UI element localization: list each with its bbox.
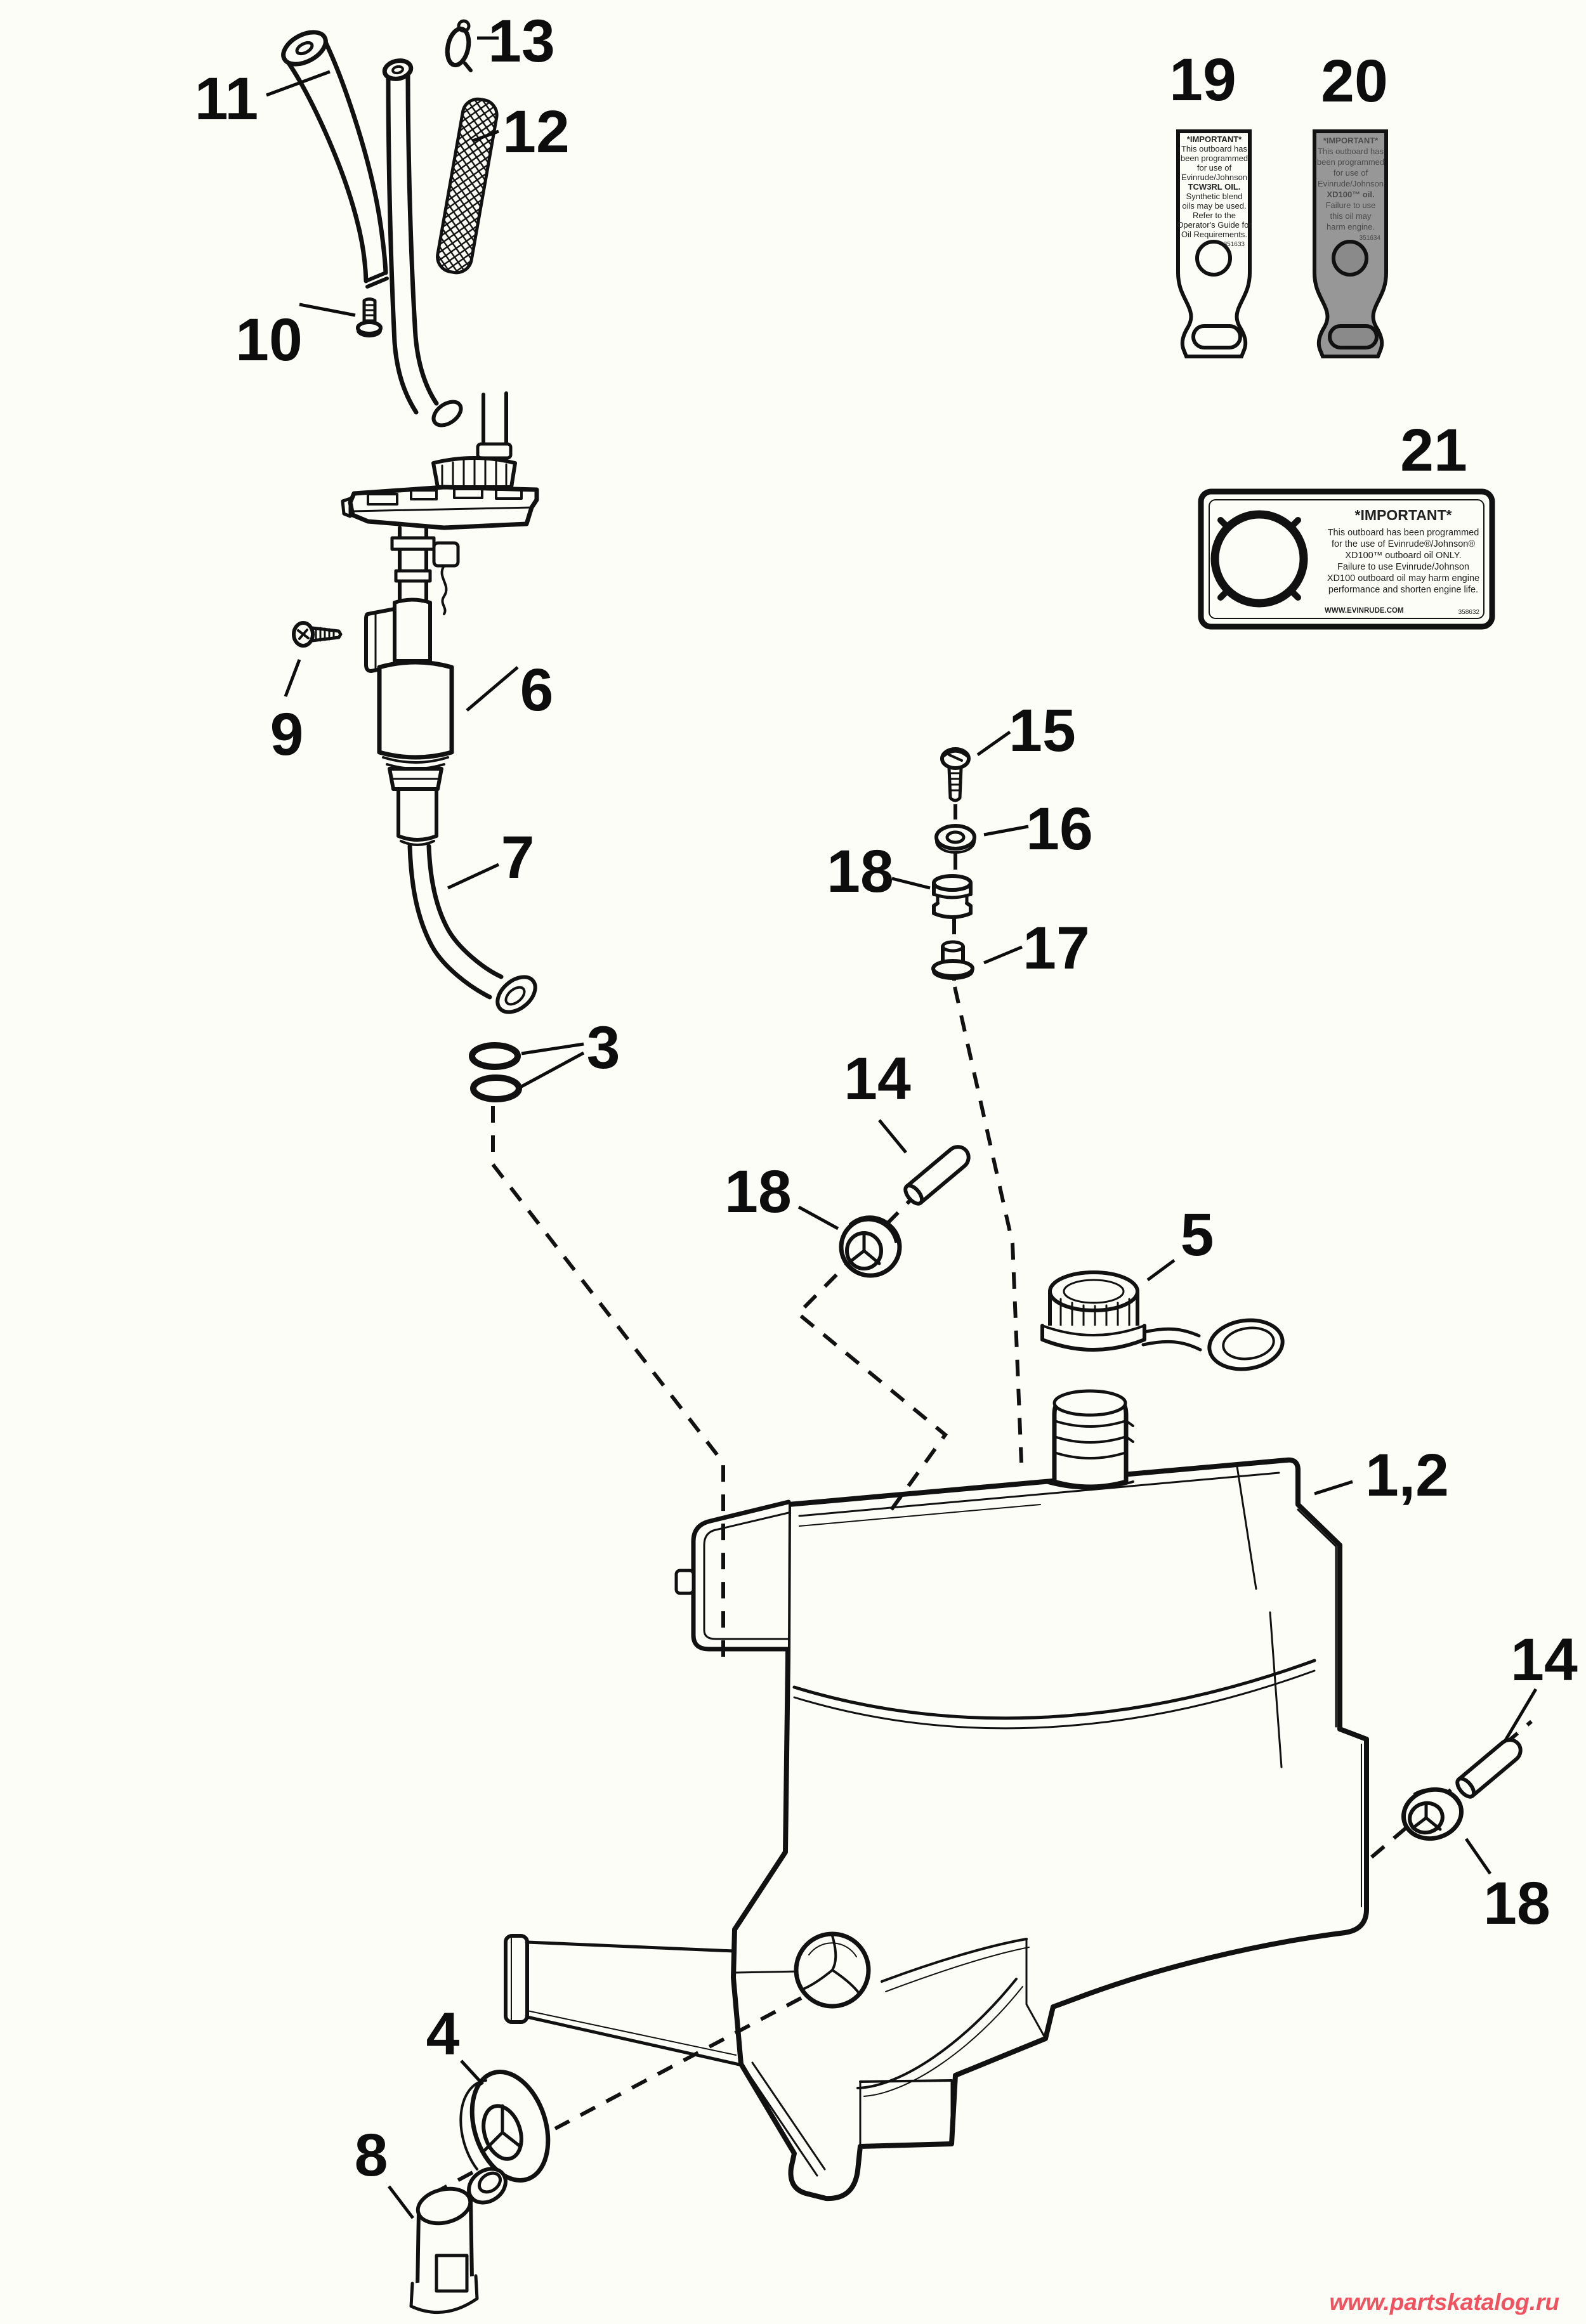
- part-grommet-18-mid: [934, 876, 971, 917]
- decal21-line: This outboard has been programmed: [1328, 528, 1479, 538]
- callout-21: 21: [1400, 417, 1467, 484]
- callout-6: 6: [520, 656, 554, 724]
- part-grommet-18-right: [1398, 1783, 1467, 1844]
- part-elbow-8: [411, 2162, 512, 2313]
- callout-14-right: 14: [1511, 1626, 1578, 1694]
- part-clamp-13: [444, 21, 471, 70]
- tag19-line: oils may be used.: [1182, 201, 1246, 211]
- tag20-line: *IMPORTANT*: [1323, 136, 1379, 145]
- tag19-line: Evinrude/Johnson: [1181, 173, 1247, 182]
- callout-18-right: 18: [1483, 1870, 1550, 1937]
- part-screw-15: [942, 749, 969, 800]
- callout-1-2: 1,2: [1365, 1442, 1449, 1509]
- callout-17: 17: [1023, 915, 1090, 982]
- part-washer-16: [936, 826, 974, 852]
- tag20-line: for use of: [1334, 168, 1368, 178]
- part-spacer-17: [933, 942, 973, 979]
- decal21-footer-right: 358632: [1458, 609, 1480, 616]
- callout-4: 4: [426, 2001, 460, 2068]
- callout-9: 9: [270, 701, 304, 768]
- callout-5: 5: [1181, 1201, 1214, 1269]
- tag19-line: *IMPORTANT*: [1187, 134, 1242, 144]
- callout-13: 13: [488, 8, 555, 75]
- tag20-code: 351634: [1360, 235, 1381, 242]
- decal21-line: XD100™ outboard oil ONLY.: [1345, 551, 1461, 561]
- decal21-line: for the use of Evinrude®/Johnson®: [1332, 539, 1475, 549]
- callout-12: 12: [502, 98, 570, 166]
- part-o-rings-3: [472, 1045, 519, 1099]
- tag20-line: XD100™ oil.: [1327, 190, 1374, 199]
- part-label-tag-19: *IMPORTANT* This outboard has been progr…: [1177, 131, 1252, 356]
- decal21-line: XD100 outboard oil may harm engine: [1327, 573, 1479, 584]
- part-hose-11: [278, 26, 387, 287]
- tag19-code: 351633: [1224, 241, 1245, 248]
- part-filler-cap-5: [1042, 1272, 1286, 1374]
- callout-8: 8: [355, 2122, 388, 2189]
- callout-18-mid: 18: [827, 838, 894, 905]
- decal21-line: performance and shorten engine life.: [1328, 585, 1478, 595]
- watermark: www.partskatalog.ru: [1329, 2289, 1559, 2315]
- tank-boss-hole: [796, 1934, 868, 2006]
- tag19-line: TCW3RL OIL.: [1188, 182, 1241, 192]
- part-pin-14-left: [902, 1142, 973, 1206]
- callout-7: 7: [501, 824, 535, 891]
- part-oil-pump: [343, 393, 542, 1019]
- tag19-line: Synthetic blend: [1186, 192, 1243, 201]
- callout-20: 20: [1321, 48, 1388, 115]
- tag19-line: Refer to the: [1193, 211, 1236, 220]
- tank-filler-neck: [1048, 1391, 1133, 1489]
- callout-19: 19: [1169, 46, 1236, 114]
- part-screw-9: [294, 623, 341, 646]
- part-bolt-10: [358, 299, 381, 336]
- tag20-line: harm engine.: [1327, 222, 1375, 232]
- parts-diagram-page: { "watermark": { "text": "www.partskatal…: [0, 0, 1586, 2324]
- part-grommet-18-left: [841, 1217, 900, 1276]
- part-label-tag-20: *IMPORTANT* This outboard has been progr…: [1314, 131, 1386, 356]
- decal21-line: Failure to use Evinrude/Johnson: [1337, 562, 1469, 572]
- diagram-canvas: 13 11 12 10 9 6 7 3 15 16 18 17 14 18 5 …: [0, 0, 1586, 2324]
- tag19-line: This outboard has: [1181, 144, 1248, 153]
- part-decal-21: *IMPORTANT* This outboard has been progr…: [1201, 492, 1492, 627]
- part-seal-4: [459, 2062, 561, 2190]
- tag20-line: This outboard has: [1318, 147, 1384, 156]
- decal21-footer-left: WWW.EVINRUDE.COM: [1325, 607, 1404, 615]
- tag20-line: Failure to use: [1326, 200, 1376, 210]
- tag20-line: this oil may: [1330, 211, 1372, 221]
- callout-14-left: 14: [844, 1045, 911, 1113]
- tag20-line: been programmed: [1317, 157, 1384, 167]
- decal21-title: *IMPORTANT*: [1355, 507, 1452, 523]
- part-pin-14-right: [1454, 1735, 1524, 1799]
- callout-11: 11: [195, 65, 258, 133]
- callout-10: 10: [235, 306, 303, 374]
- tag19-line: been programmed: [1181, 153, 1248, 163]
- tag19-line: Operator's Guide for: [1177, 220, 1252, 230]
- callout-3: 3: [587, 1014, 620, 1081]
- part-mesh-sleeve-12: [435, 96, 499, 275]
- callout-18-left: 18: [724, 1158, 792, 1225]
- tank-lower-arm: [506, 1936, 742, 2065]
- callout-15: 15: [1009, 697, 1076, 764]
- tag19-line: Oil Requirements.: [1181, 230, 1247, 239]
- part-oil-tank: [506, 1391, 1366, 2198]
- tag20-line: Evinrude/Johnson: [1318, 179, 1384, 188]
- tag19-line: for use of: [1197, 163, 1232, 173]
- callout-16: 16: [1026, 795, 1093, 863]
